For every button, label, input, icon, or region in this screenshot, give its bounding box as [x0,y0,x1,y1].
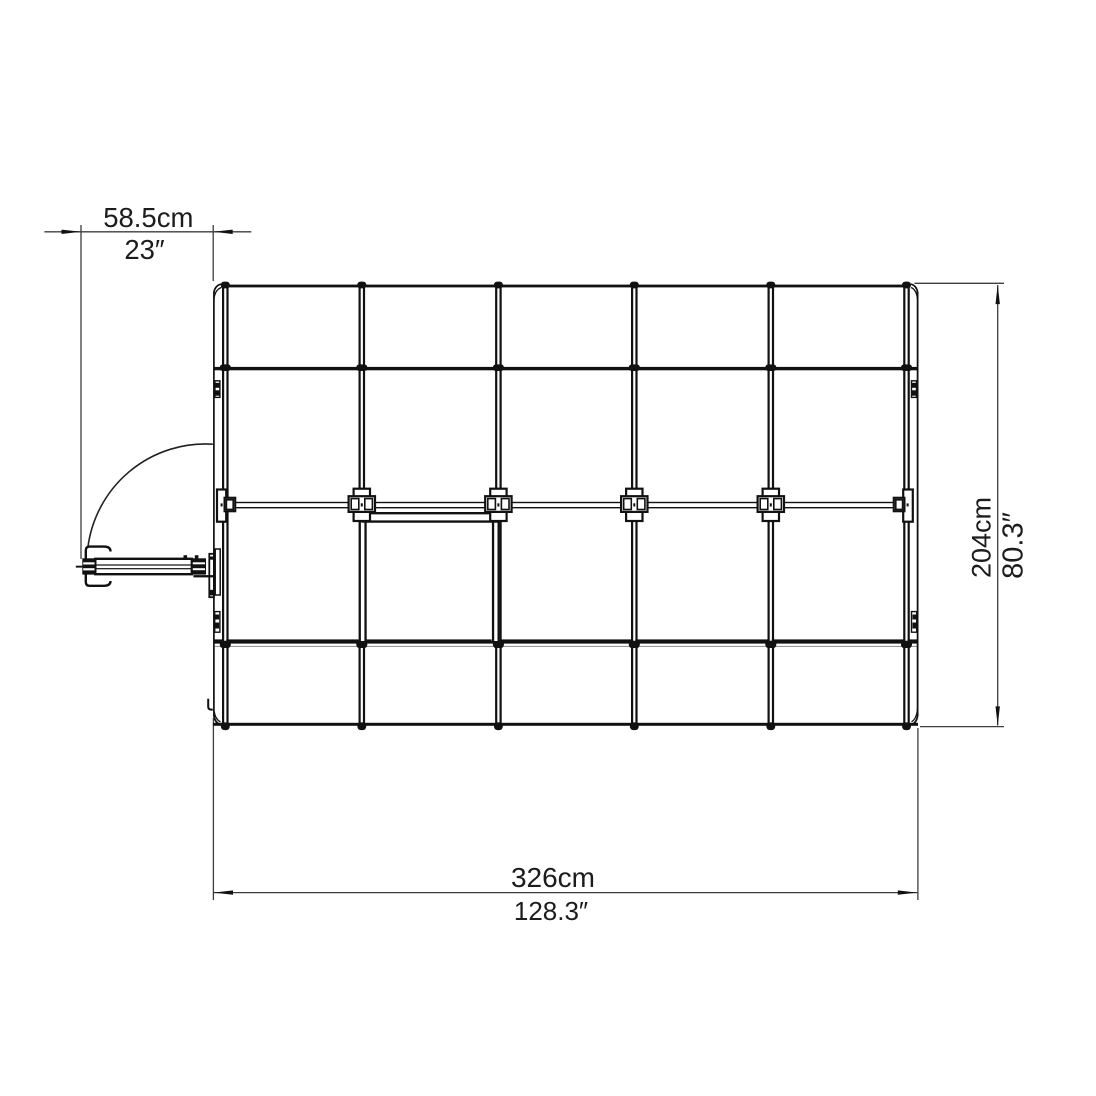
svg-text:326cm: 326cm [511,862,595,893]
svg-text:58.5cm: 58.5cm [103,202,193,233]
svg-text:23″: 23″ [124,234,165,265]
svg-text:80.3″: 80.3″ [998,512,1030,579]
svg-text:128.3″: 128.3″ [514,896,588,926]
svg-text:204cm: 204cm [967,497,997,578]
